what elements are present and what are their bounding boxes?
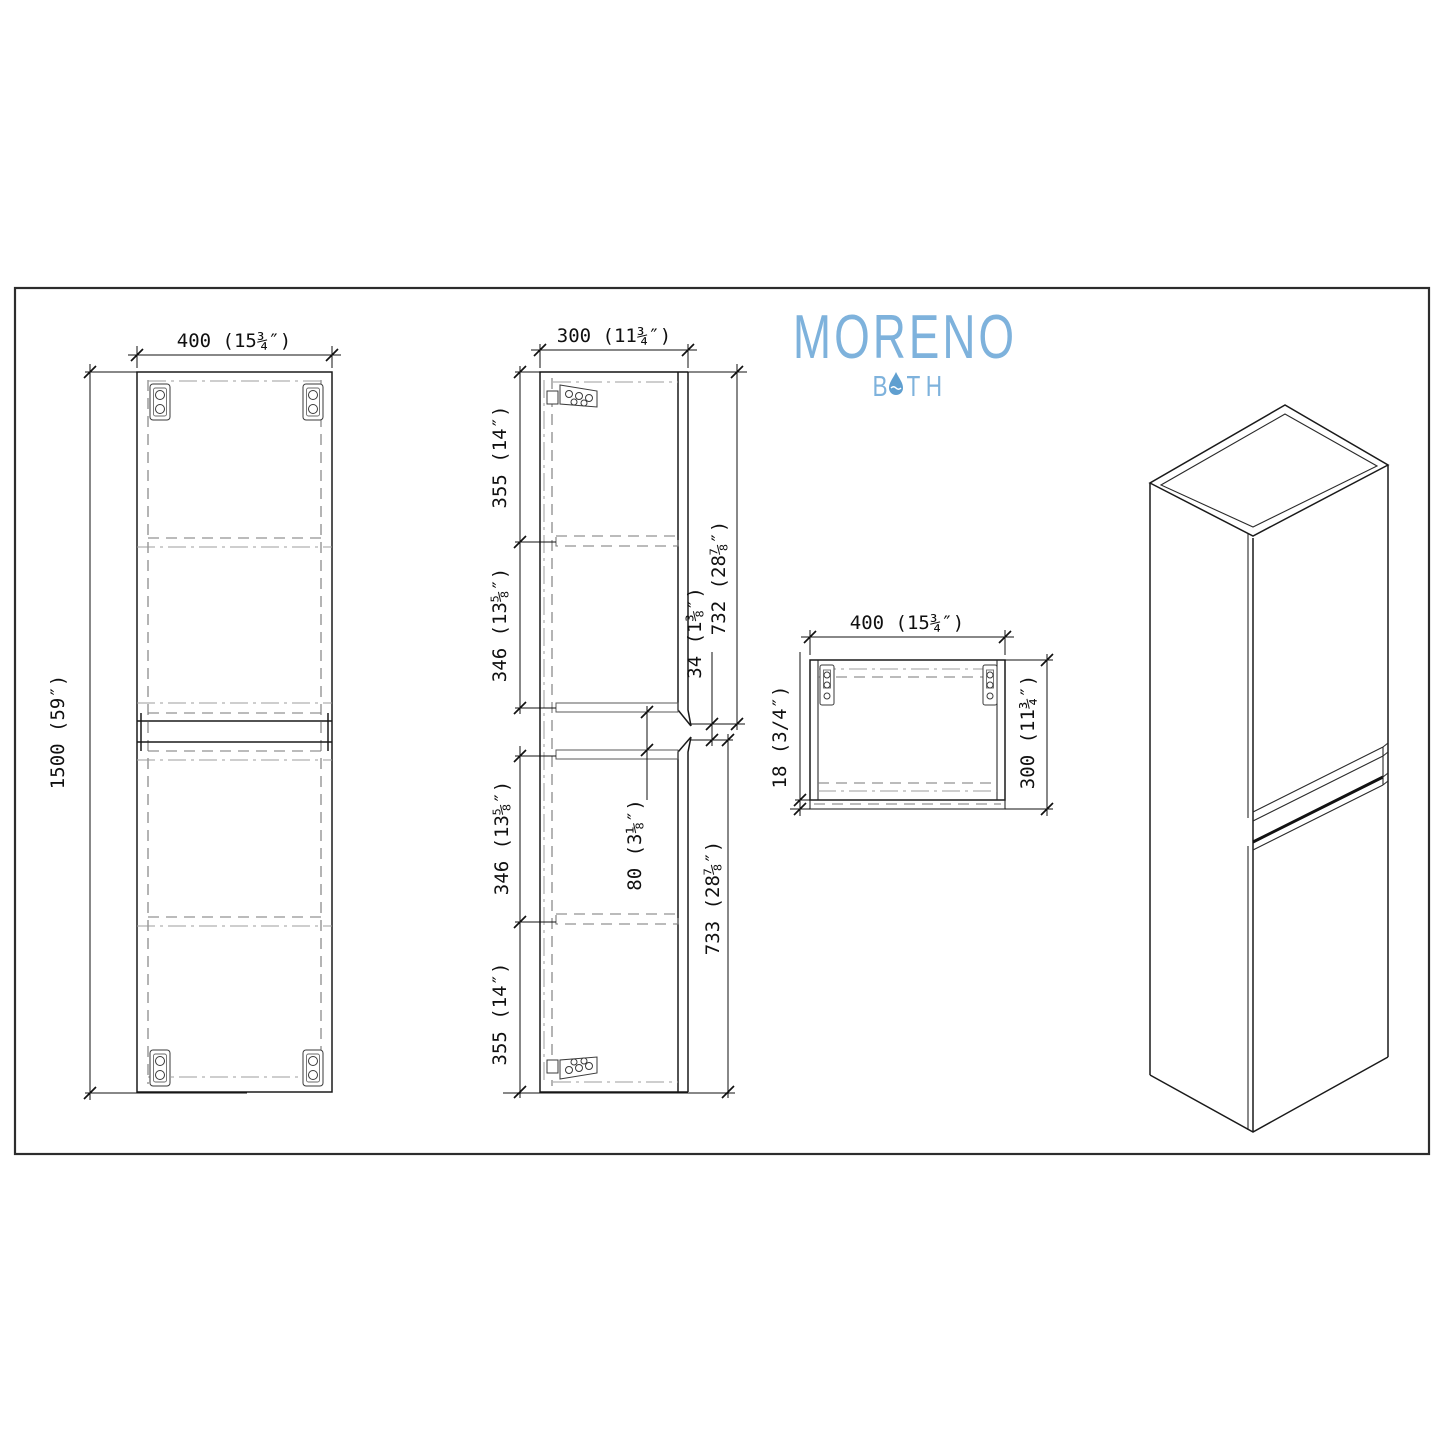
back-panel-label: 18 (3/4″): [769, 686, 791, 789]
technical-drawing-sheet: 400 (15¾″) 1500 (59″): [0, 0, 1445, 1445]
front-height-label: 1500 (59″): [47, 675, 69, 789]
front-hidden-lines: [137, 380, 332, 1084]
lower-door-label: 733 (28⅞″): [702, 841, 724, 955]
segment-4-label: 355 (14″): [489, 963, 511, 1066]
vertical-edges: [1150, 465, 1388, 1132]
wall-bracket-icon: [820, 665, 997, 705]
side-outline: [540, 372, 688, 1092]
handle-groove: [1253, 743, 1388, 850]
hinge-icon: [547, 385, 597, 1079]
top-outline: [810, 660, 1005, 800]
front-height-dimension: 1500 (59″): [47, 364, 247, 1100]
top-width-label: 400 (15¾″): [850, 612, 964, 634]
side-depth-dimension: 300 (11¾″): [531, 325, 697, 368]
groove-label: 80 (3⅛″): [624, 799, 646, 891]
water-drop-icon: [889, 372, 903, 395]
front-width-dimension: 400 (15¾″): [128, 330, 341, 368]
segment-1-label: 355 (14″): [489, 406, 511, 509]
cabinet-outline: [137, 372, 332, 1092]
door-gap-label: 34 (1⅜″): [684, 587, 706, 679]
shelf-lines: [556, 536, 678, 924]
top-depth-label: 300 (11¾″): [1017, 675, 1039, 789]
bottom-edges: [1150, 1057, 1388, 1132]
front-width-label: 400 (15¾″): [177, 330, 291, 352]
brand-name: MORENO: [793, 302, 1017, 371]
top-hidden-lines: [814, 669, 1001, 804]
top-width-dimension: 400 (15¾″): [801, 612, 1014, 655]
side-panels: [818, 660, 997, 800]
top-depth-dimension: 300 (11¾″): [1005, 654, 1053, 816]
back-panel-dimension: 18 (3/4″): [769, 652, 810, 816]
wall-bracket-icon: [150, 384, 323, 1086]
brand-tagline-b: B: [872, 369, 887, 402]
side-section-view: 300 (11¾″) 355 (14″) 346 (13⅝″) 346 (13⅝…: [489, 325, 747, 1098]
brand-tagline-th: TH: [906, 369, 947, 402]
side-door-dimensions: 732 (28⅞″) 34 (1⅜″) 733 (28⅞″): [684, 364, 745, 1098]
side-hidden-lines: [544, 378, 678, 1086]
door-groove-band: [137, 713, 332, 751]
upper-door-label: 732 (28⅞″): [708, 521, 730, 635]
top-plan-view: 400 (15¾″) 18 (3/4″) 300 (11¾″): [769, 612, 1053, 816]
isometric-view: [1150, 405, 1388, 1132]
side-segment-dimensions: 355 (14″) 346 (13⅝″) 346 (13⅝″) 355 (14″…: [489, 366, 747, 1098]
front-elevation-view: 400 (15¾″) 1500 (59″): [47, 330, 341, 1100]
brand-logo: MORENO B TH: [793, 302, 1017, 402]
groove-dimension: 80 (3⅛″): [624, 706, 653, 891]
side-depth-label: 300 (11¾″): [557, 325, 671, 347]
segment-2-label: 346 (13⅝″): [489, 568, 511, 682]
top-face-inner-edge: [1161, 414, 1377, 527]
segment-3-label: 346 (13⅝″): [491, 781, 513, 895]
side-front-edge-notch: [678, 372, 691, 1092]
